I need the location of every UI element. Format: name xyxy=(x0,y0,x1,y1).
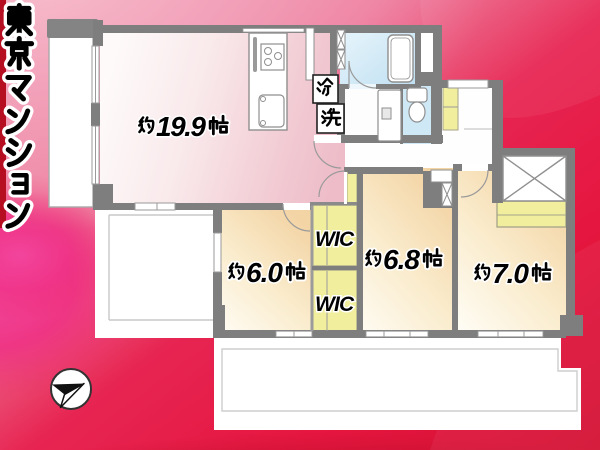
svg-text:6.0: 6.0 xyxy=(246,257,283,288)
svg-text:7.0: 7.0 xyxy=(492,258,529,289)
svg-text:6.8: 6.8 xyxy=(383,244,420,275)
svg-text:WIC: WIC xyxy=(315,293,355,316)
svg-text:WIC: WIC xyxy=(315,228,355,251)
svg-text:19.9: 19.9 xyxy=(156,111,206,142)
